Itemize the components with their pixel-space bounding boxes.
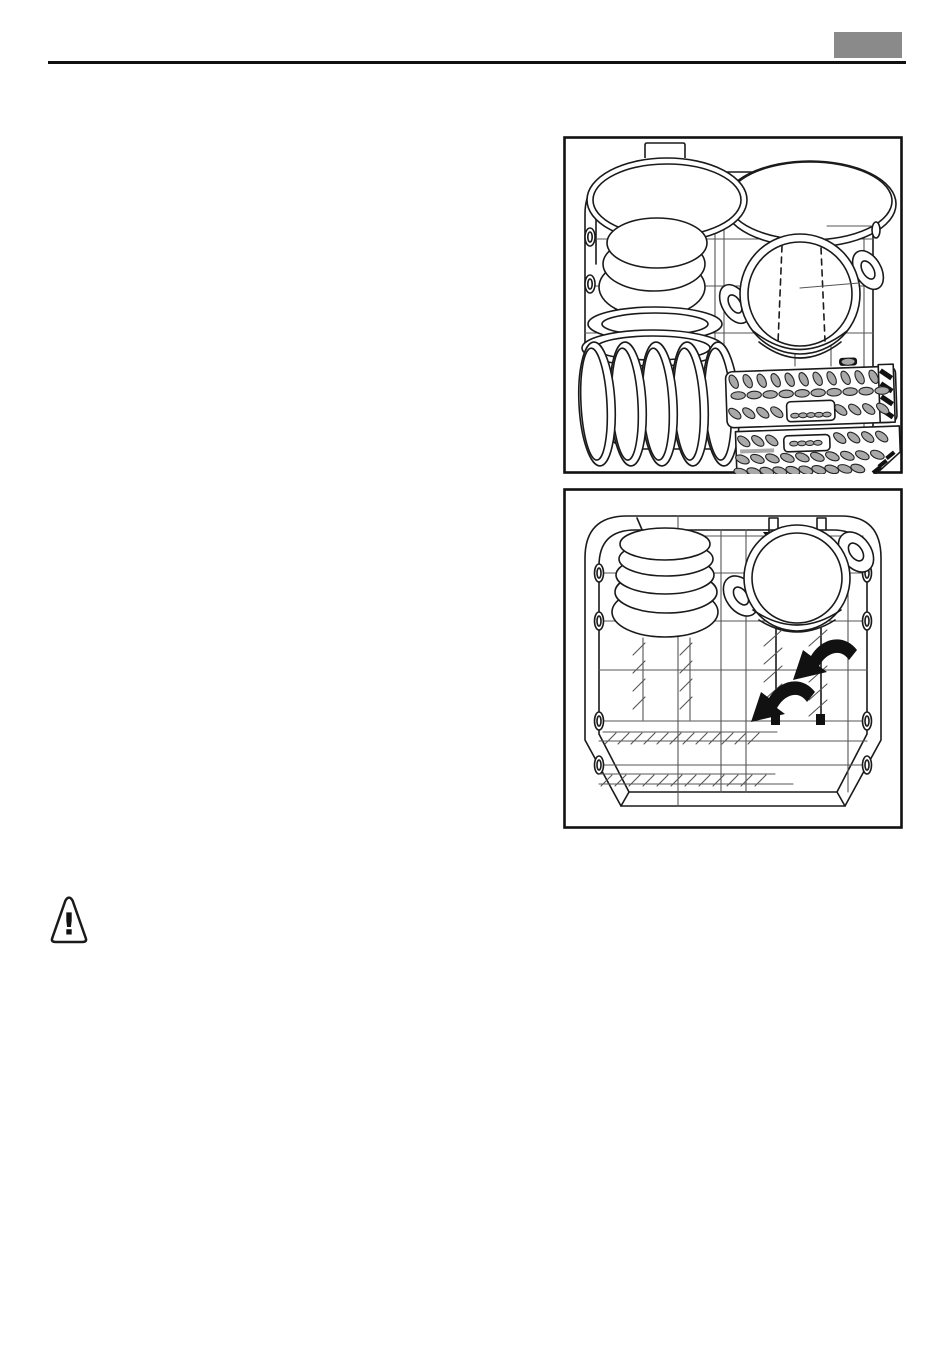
page-number-tab [834,32,902,58]
exclamation-glyph: ! [62,907,76,942]
upper-basket-figure [563,136,903,474]
bowl-stack [612,518,718,637]
bowl-stack [599,218,707,317]
header-rule [48,61,906,64]
lower-basket-figure [563,488,903,829]
cutlery-basket [725,356,901,474]
manual-page: { "page": { "background": "#ffffff", "wi… [0,0,950,1355]
warning-triangle-icon: ! [46,891,92,945]
plate-row [576,341,742,467]
